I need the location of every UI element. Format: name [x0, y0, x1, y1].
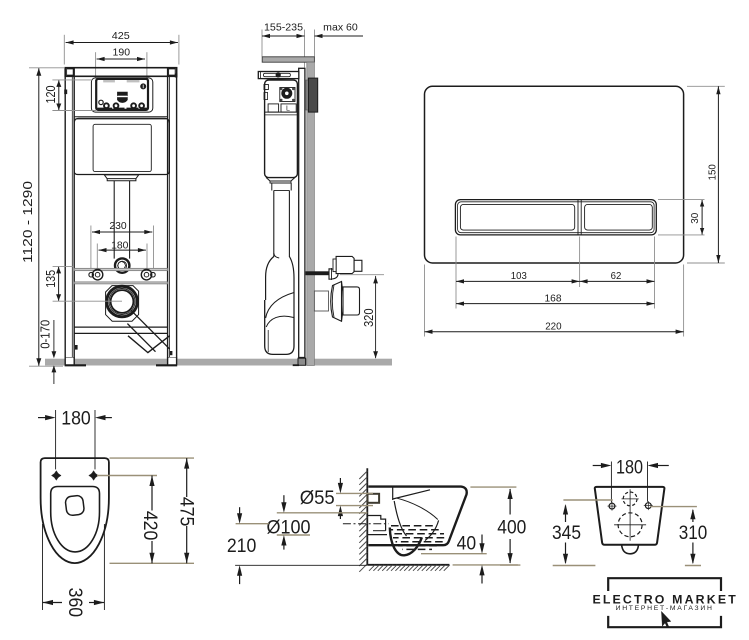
svg-text:425: 425 — [112, 30, 130, 42]
svg-text:190: 190 — [113, 46, 131, 58]
svg-text:103: 103 — [511, 270, 527, 282]
svg-text:360: 360 — [64, 588, 85, 618]
svg-text:30: 30 — [689, 213, 701, 224]
svg-text:max 60: max 60 — [323, 21, 358, 33]
svg-text:180: 180 — [616, 458, 643, 479]
svg-text:Ø55: Ø55 — [300, 488, 335, 509]
svg-text:230: 230 — [109, 220, 126, 232]
svg-text:40: 40 — [457, 533, 477, 554]
svg-text:320: 320 — [362, 308, 376, 327]
svg-text:0-170: 0-170 — [37, 320, 52, 349]
svg-text:120: 120 — [43, 86, 58, 104]
svg-text:150: 150 — [706, 164, 718, 180]
svg-text:155-235: 155-235 — [264, 21, 303, 33]
svg-text:420: 420 — [139, 511, 160, 541]
svg-text:210: 210 — [227, 536, 257, 557]
svg-text:62: 62 — [611, 270, 622, 282]
svg-text:168: 168 — [545, 292, 562, 304]
svg-text:L: L — [286, 106, 290, 113]
svg-text:220: 220 — [545, 320, 562, 332]
svg-text:1120 - 1290: 1120 - 1290 — [20, 181, 35, 263]
svg-text:400: 400 — [497, 518, 526, 539]
svg-text:475: 475 — [175, 497, 196, 526]
svg-text:ELECTRO MARKET: ELECTRO MARKET — [592, 592, 738, 606]
svg-text:ИНТЕРНЕТ-МАГАЗИН: ИНТЕРНЕТ-МАГАЗИН — [616, 606, 714, 612]
svg-text:180: 180 — [61, 408, 91, 429]
svg-text:135: 135 — [43, 270, 58, 288]
svg-text:345: 345 — [552, 523, 581, 544]
svg-text:310: 310 — [679, 523, 708, 544]
